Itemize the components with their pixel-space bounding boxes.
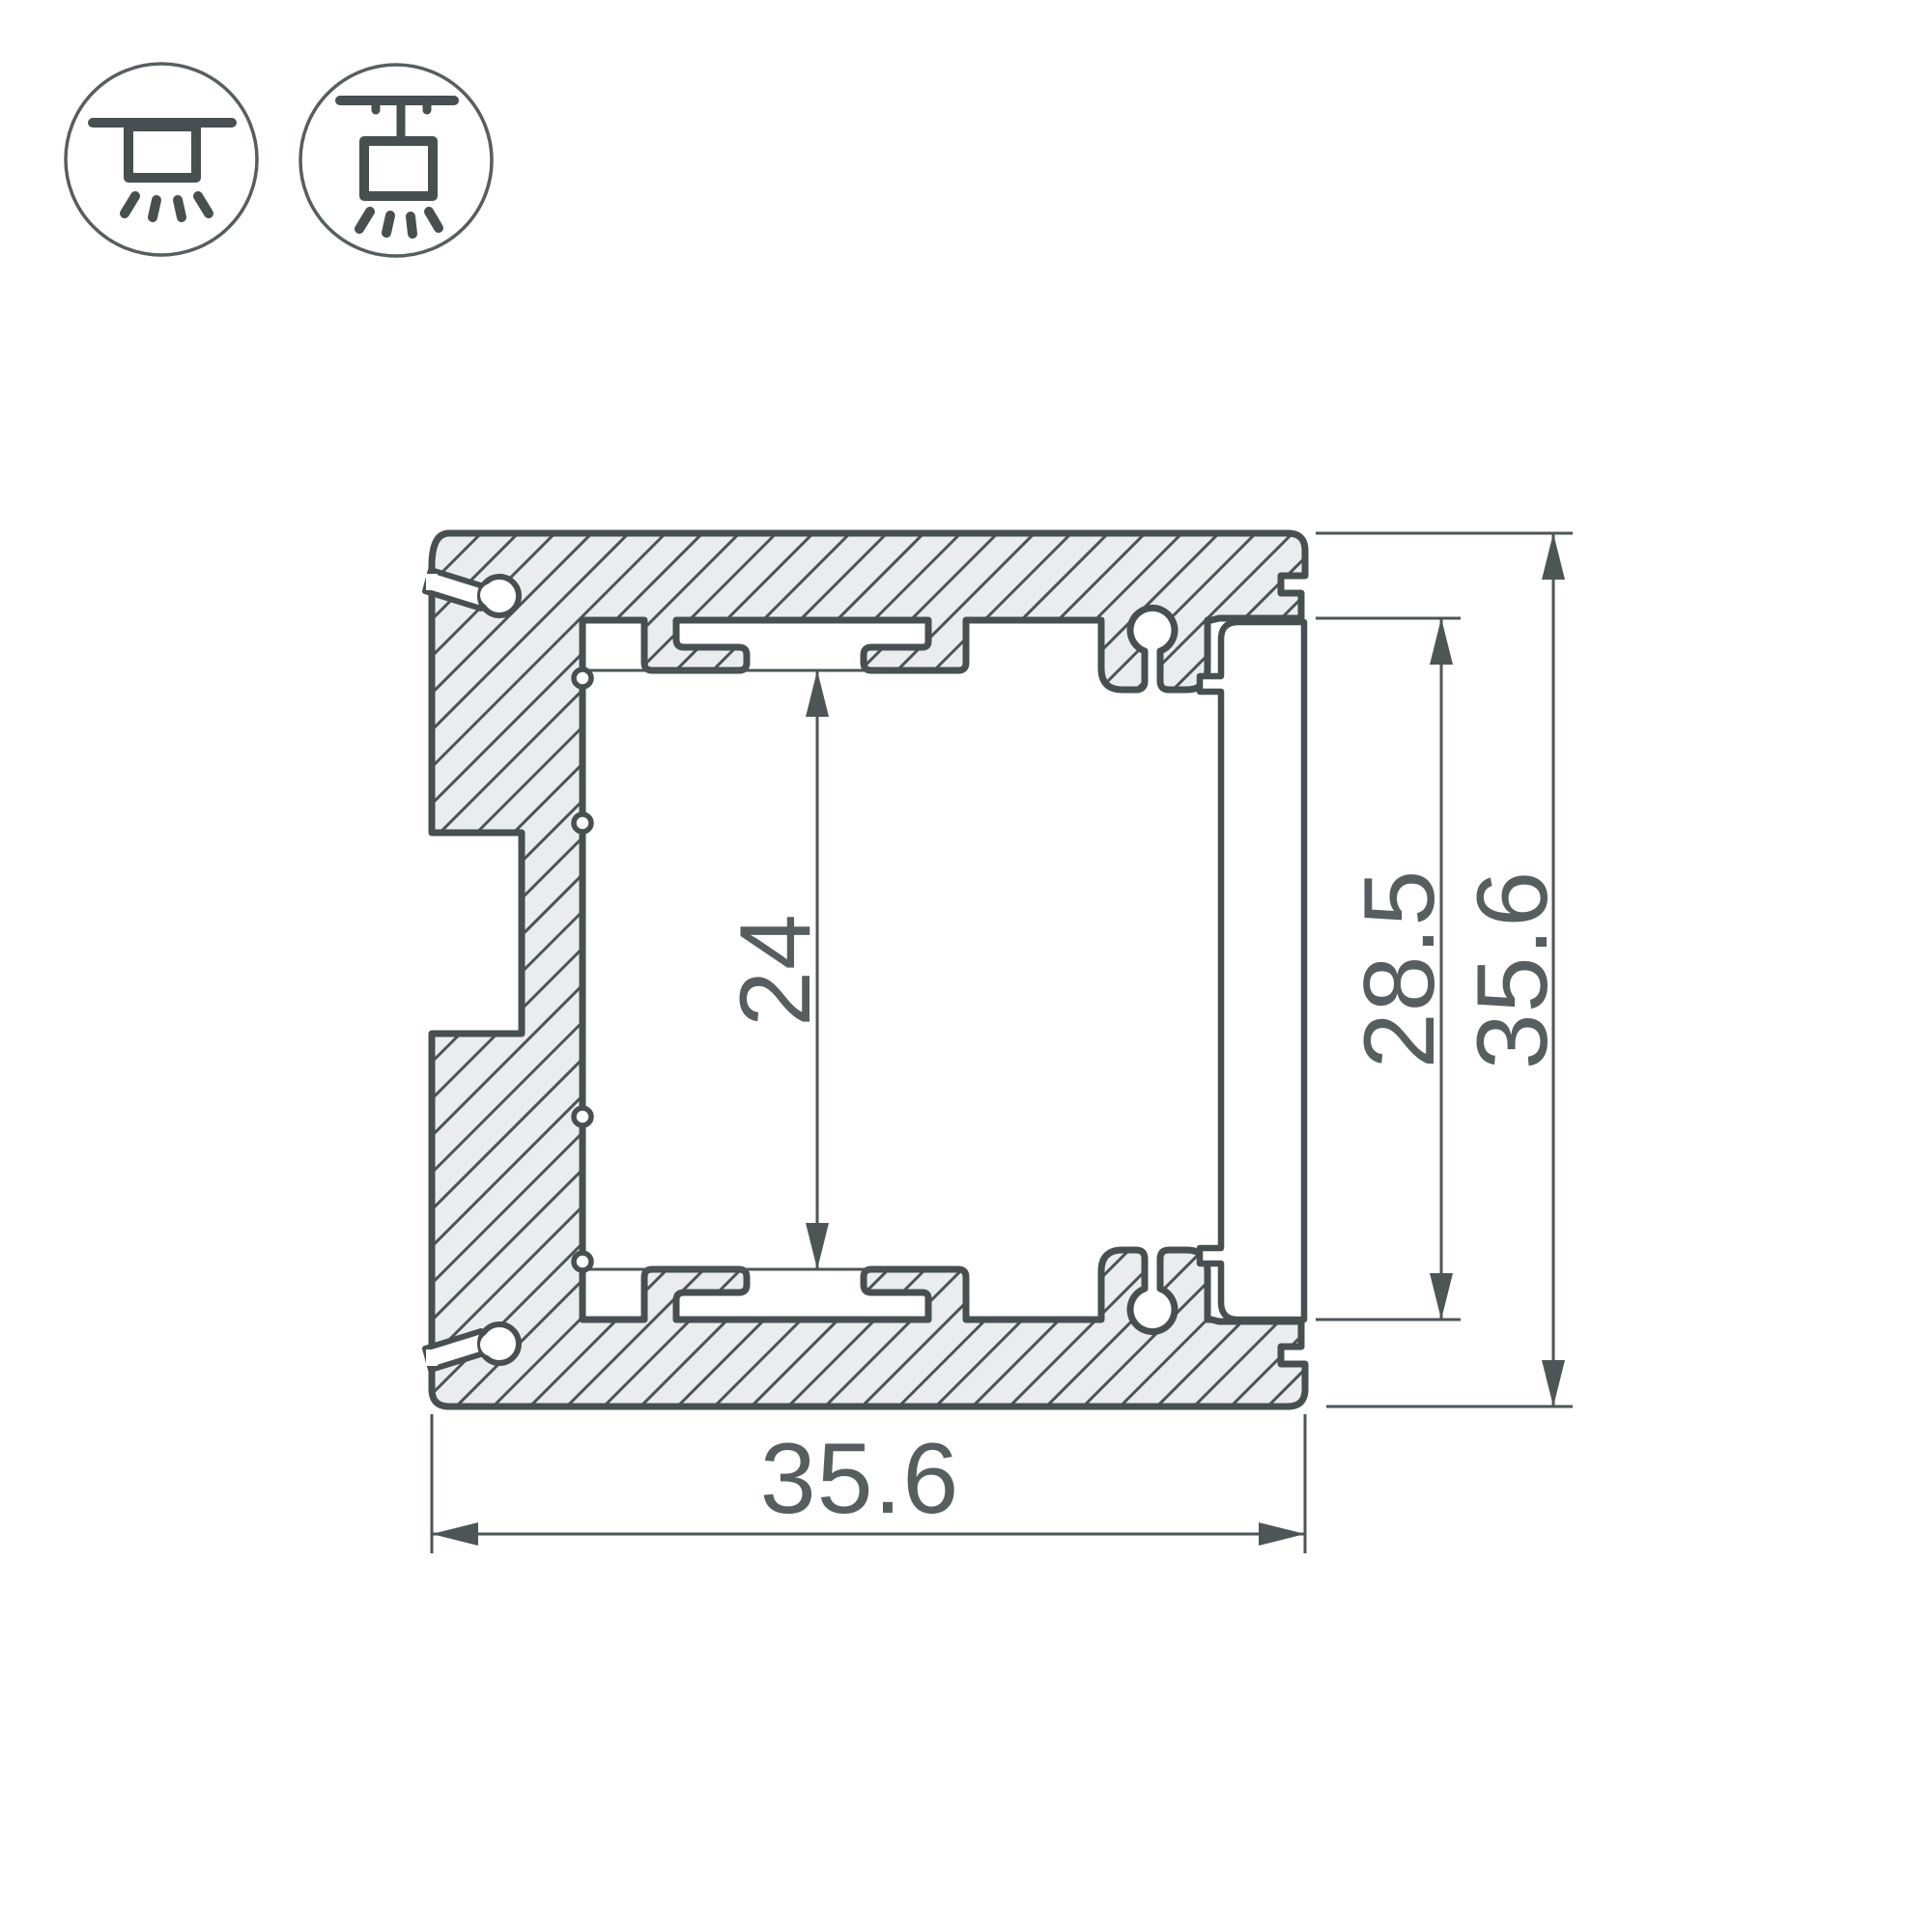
slit-join bbox=[480, 1333, 503, 1356]
surface-mount-icon bbox=[66, 64, 257, 255]
luminaire-box bbox=[364, 141, 433, 196]
icon-circle bbox=[300, 65, 492, 256]
dimension-label-outer-width: 35.6 bbox=[760, 1423, 959, 1535]
inner-rib-notch bbox=[574, 1108, 591, 1125]
slit-join bbox=[480, 583, 503, 607]
arrowhead-up bbox=[806, 670, 829, 717]
arrowhead-down bbox=[1542, 1360, 1565, 1406]
profile-technical-drawing: 24 28.5 35.6 35.6 bbox=[0, 0, 1932, 1932]
profile-body bbox=[432, 533, 1305, 1406]
diffuser-cover bbox=[1200, 622, 1304, 1320]
inner-rib-notch bbox=[574, 669, 591, 687]
slit-opening bbox=[426, 574, 438, 590]
dimension-channel-height: 24 bbox=[589, 670, 885, 1269]
arrowhead-left bbox=[432, 1522, 478, 1546]
profile-cross-section bbox=[425, 533, 1305, 1406]
drawing-canvas: 24 28.5 35.6 35.6 bbox=[0, 0, 1932, 1932]
dimension-label-channel-height: 24 bbox=[720, 913, 832, 1027]
dimension-label-outer-height: 35.6 bbox=[1457, 870, 1569, 1069]
arrowhead-up bbox=[1430, 618, 1453, 665]
arrowhead-down bbox=[806, 1223, 829, 1269]
slit-opening bbox=[426, 1350, 438, 1366]
arrowhead-right bbox=[1259, 1522, 1305, 1546]
mounting-icons bbox=[66, 64, 492, 256]
light-rays bbox=[359, 212, 439, 234]
dimension-outer-width: 35.6 bbox=[432, 1414, 1305, 1553]
icon-circle bbox=[66, 64, 257, 255]
arrowhead-down bbox=[1430, 1273, 1453, 1320]
inner-rib-notch bbox=[574, 814, 591, 832]
inner-rib-notch bbox=[574, 1253, 591, 1270]
light-rays bbox=[125, 196, 209, 217]
dimension-inner-height: 28.5 bbox=[1316, 618, 1461, 1320]
arrowhead-up bbox=[1542, 533, 1565, 580]
luminaire-box bbox=[128, 127, 196, 178]
pendant-mount-icon bbox=[300, 65, 492, 256]
dimension-label-inner-height: 28.5 bbox=[1344, 869, 1456, 1068]
